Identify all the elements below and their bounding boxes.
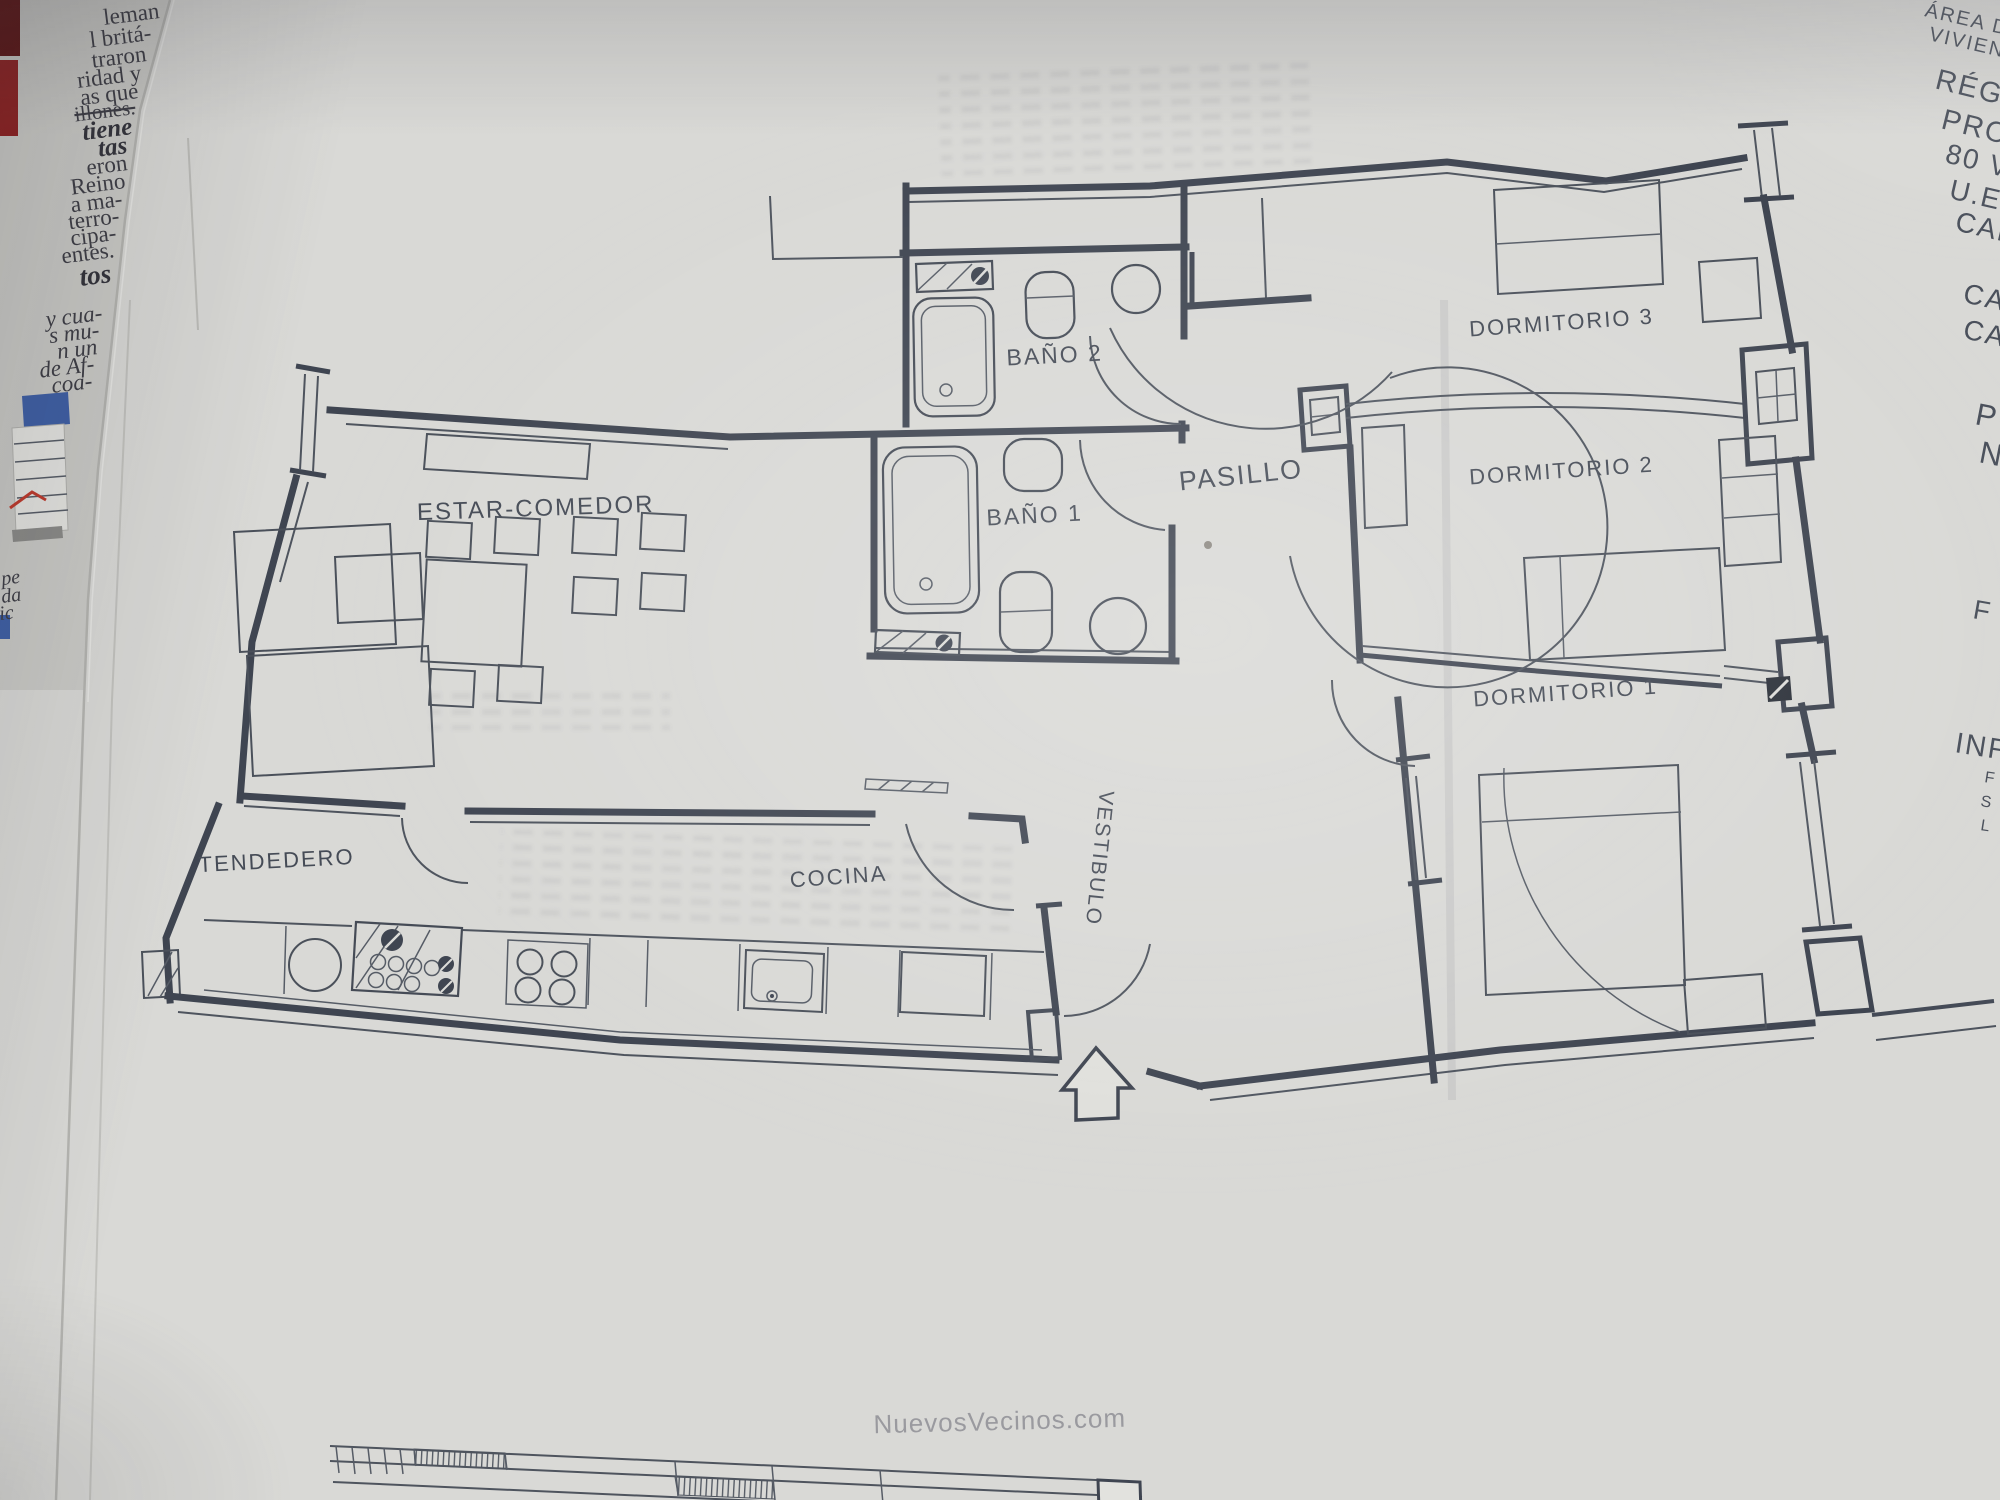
- newspaper-fragment: tos: [78, 258, 113, 292]
- entrance-arrow-icon: [1062, 1048, 1132, 1120]
- margin-annotations: ÁREA D VIVIEND RÉGI PRO 80 V U.E CAL CA …: [1923, 0, 2000, 836]
- laundry-basin: [289, 939, 341, 991]
- kitchen-counter: [204, 920, 1044, 1050]
- bedroom-furniture: [1362, 180, 1781, 1034]
- dust-speck: [1204, 541, 1212, 549]
- toilet: [1025, 271, 1075, 339]
- room-label-tendedero: TENDEDERO: [198, 844, 355, 877]
- sofa: [234, 524, 396, 652]
- room-label-dormitorio-3: DORMITORIO 3: [1468, 304, 1654, 342]
- room-label-dormitorio-2: DORMITORIO 2: [1468, 452, 1654, 490]
- margin-text: P: [1973, 397, 2000, 436]
- margin-text: F: [1971, 594, 1994, 627]
- margin-text: S: [1979, 793, 1994, 812]
- sink: [1090, 598, 1146, 654]
- margin-text: CA: [1961, 314, 2000, 353]
- margin-text: CA: [1961, 278, 2000, 317]
- newspaper-fragment: coa-: [50, 368, 94, 398]
- margin-text: INF: [1953, 727, 2000, 767]
- fridge: [900, 952, 986, 1016]
- scale-bar: [330, 1446, 1143, 1500]
- armchair: [335, 553, 423, 623]
- margin-text: RÉGI: [1932, 63, 2000, 114]
- room-label-bano-2: BAÑO 2: [1006, 340, 1104, 371]
- sofa: [247, 646, 434, 776]
- chart-blue-bar: [22, 392, 70, 428]
- plan-walls: [142, 123, 1996, 1100]
- closet: [1362, 425, 1407, 528]
- bed: [1524, 548, 1725, 660]
- watermark: NuevosVecinos.com: [873, 1403, 1126, 1440]
- margin-text: L: [1979, 817, 1992, 835]
- room-label-pasillo: PASILLO: [1178, 454, 1305, 497]
- margin-text: N: [1977, 435, 2000, 474]
- dining-set: [421, 513, 686, 707]
- page-crease: [1444, 300, 1452, 1100]
- bedside-table: [1699, 258, 1761, 322]
- photo-of-floor-plan: ESTAR-COMEDOR BAÑO 2 BAÑO 1 PASILLO DORM…: [0, 0, 2000, 1500]
- floor-plan: ESTAR-COMEDOR BAÑO 2 BAÑO 1 PASILLO DORM…: [0, 0, 2000, 1500]
- bathtub: [913, 297, 995, 416]
- room-label-bano-1: BAÑO 1: [986, 500, 1084, 531]
- bathtub: [883, 446, 980, 614]
- newspaper-red-block: [0, 60, 18, 136]
- room-label-vestibulo: VESTIBULO: [1081, 789, 1118, 927]
- bathroom-fixtures: [875, 261, 1160, 655]
- wardrobe: [1494, 180, 1663, 294]
- room-label-estar-comedor: ESTAR-COMEDOR: [417, 491, 655, 526]
- newspaper-masthead-red-block: [0, 0, 20, 56]
- bed: [1479, 765, 1685, 995]
- margin-text: F: [1983, 769, 1997, 788]
- sideboard: [424, 434, 590, 479]
- bidet: [1004, 439, 1062, 491]
- sink: [1112, 265, 1160, 313]
